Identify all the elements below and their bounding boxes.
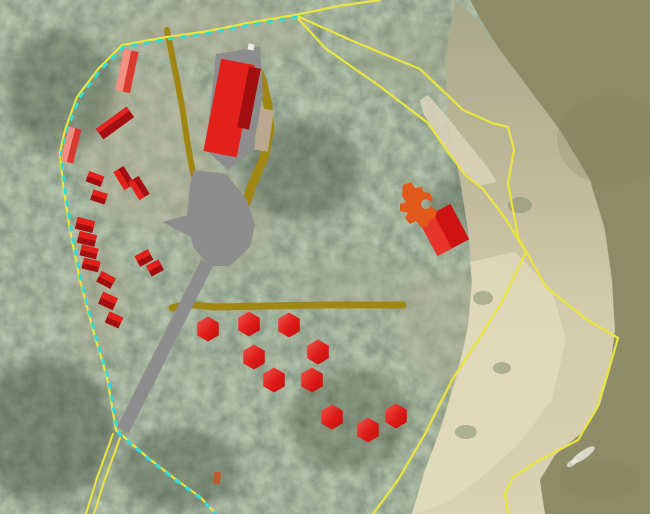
aerial-map-svg[interactable] bbox=[0, 0, 650, 514]
trail-south[interactable] bbox=[172, 304, 403, 308]
clearing-patch bbox=[120, 7, 310, 63]
beach-grass-tuft bbox=[493, 362, 511, 374]
lodge-white-mark bbox=[247, 43, 254, 50]
map-viewport[interactable] bbox=[0, 0, 650, 514]
tree-clump bbox=[120, 430, 240, 510]
beach-grass-tuft bbox=[473, 291, 493, 305]
beach-grass-tuft bbox=[455, 425, 477, 439]
